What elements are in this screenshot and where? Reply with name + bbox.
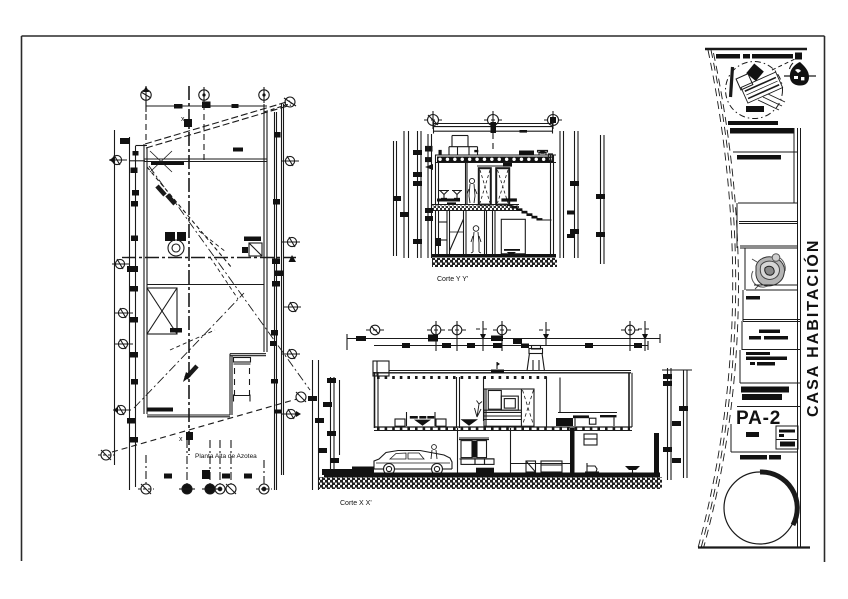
svg-text:Planta Alta de Azotea: Planta Alta de Azotea — [195, 453, 257, 460]
svg-text:Corte Y Y': Corte Y Y' — [437, 276, 468, 283]
svg-text:x: x — [181, 116, 185, 123]
svg-text:CASA HABITACIÓN: CASA HABITACIÓN — [803, 239, 822, 417]
svg-text:PA-2: PA-2 — [736, 408, 781, 429]
svg-text:Corte X X': Corte X X' — [340, 500, 372, 507]
svg-text:x: x — [179, 436, 183, 443]
